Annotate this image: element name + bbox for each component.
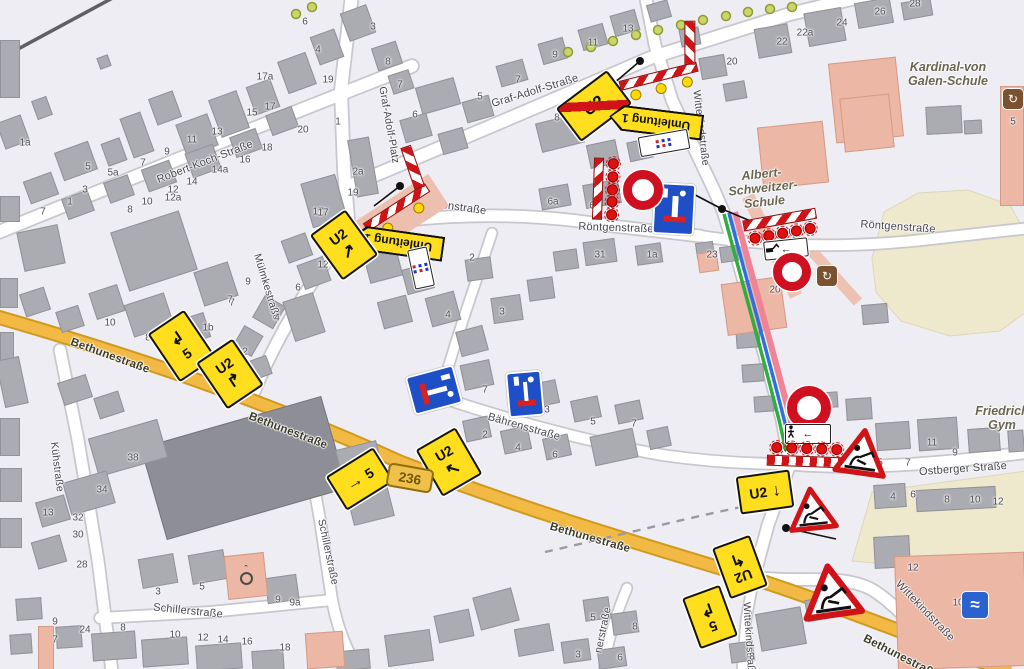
roadworks-triangle-icon: [785, 484, 839, 534]
roadworks-triangle-icon: [796, 559, 865, 623]
pedestrian-icon: [680, 190, 686, 196]
direction-arrow-icon: ↖: [442, 458, 463, 481]
roadworks-triangle-icon: [832, 424, 892, 480]
warning-lamp-icon: [681, 75, 694, 88]
traffic-signs-layer: U2Umleitung 1Umleitung 1U2↗←↻↻←U2↓5U2↰5↱…: [0, 0, 1024, 669]
red-light-icon: [801, 443, 812, 454]
barrier-beam: [592, 158, 604, 220]
direction-arrow-icon: ↓: [771, 481, 782, 500]
route-label: 5: [362, 465, 376, 482]
poi-icon: ↻: [1003, 89, 1023, 109]
warning-lamp-icon: [655, 82, 668, 95]
roadworks-warning-sign: [796, 559, 865, 623]
barrier-pole: [684, 21, 695, 65]
no-entry-sign: [623, 170, 663, 210]
dead-end-bar: [663, 216, 685, 223]
route-label: 5: [707, 618, 719, 634]
roadworks-warning-sign: [785, 484, 839, 534]
red-light-icon: [790, 225, 803, 238]
red-light-icon: [776, 227, 789, 240]
direction-arrow-icon: ↱: [698, 599, 717, 621]
swimming-pool-icon: ≈: [962, 592, 988, 618]
barrier-with-lights-vertical: [592, 158, 622, 221]
red-light-icon: [606, 196, 617, 207]
roadworks-warning-sign: [832, 424, 892, 480]
direction-arrow-icon: ↱: [223, 369, 245, 392]
monument-icon: ˆ: [236, 566, 256, 586]
left-arrow-icon: ←: [803, 428, 814, 440]
dead-end-stem: [427, 385, 448, 395]
pedestrian-icon: [527, 376, 534, 383]
red-light-icon: [804, 222, 817, 235]
dead-end-sign: [405, 364, 464, 416]
dead-end-sign: [505, 370, 545, 419]
red-light-icon: [786, 442, 797, 453]
warning-lamp-icon: [629, 88, 642, 101]
route-label: U2: [580, 92, 608, 119]
fine-print-icon: [655, 138, 672, 149]
direction-arrow-icon: →: [343, 470, 367, 494]
supplementary-info-sign: ←: [785, 424, 831, 444]
pedestrian-icon: [447, 390, 454, 397]
fine-print-icon: [412, 262, 429, 273]
route-label: U2: [748, 484, 768, 501]
dead-end-stem: [672, 196, 678, 217]
bicycle-icon: [441, 374, 451, 381]
red-light-icon: [607, 171, 618, 182]
route-label: 5: [180, 346, 195, 363]
dead-end-stem: [523, 382, 529, 401]
pedestrian-icon: [786, 425, 796, 438]
construction-barrier: [619, 62, 704, 110]
no-entry-sign: [773, 253, 811, 291]
bicycle-icon: [513, 377, 519, 386]
bicycle-icon: [662, 188, 667, 197]
direction-arrow-icon: ↗: [338, 240, 360, 263]
red-light-icon: [606, 209, 617, 220]
red-light-icon: [771, 442, 782, 453]
detour-route-sign-plate-5-236: →5: [326, 447, 395, 511]
city-map[interactable]: Kardinal-von Galen-Schule Albert- Schwei…: [0, 0, 1024, 669]
red-light-icon: [608, 158, 619, 169]
poi-icon: ↻: [817, 266, 837, 286]
excavator-icon: [764, 241, 780, 254]
red-light-icon: [749, 232, 762, 245]
direction-arrow-icon: ↰: [728, 549, 747, 571]
red-light-icon: [816, 443, 827, 454]
monument-ring: [240, 572, 253, 585]
red-light-icon: [607, 184, 618, 195]
barrier-pole: [400, 145, 425, 190]
